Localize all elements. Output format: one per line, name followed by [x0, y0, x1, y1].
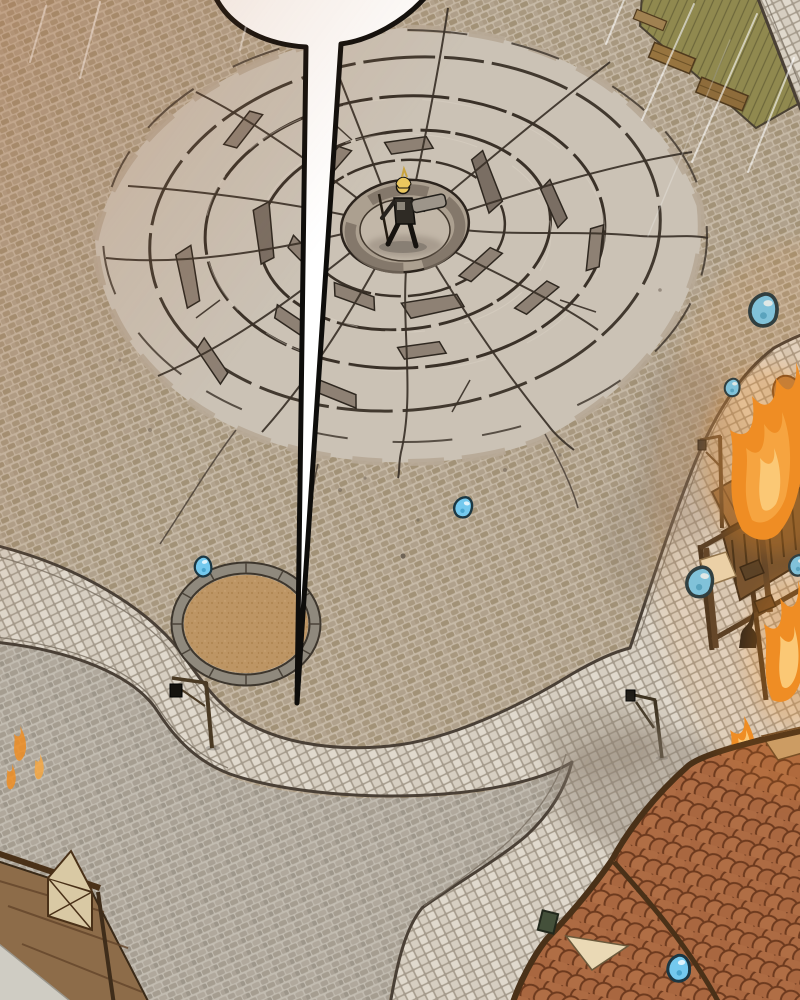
comic-panel-canvas: [0, 0, 800, 1000]
comic-panel: [0, 0, 800, 1000]
